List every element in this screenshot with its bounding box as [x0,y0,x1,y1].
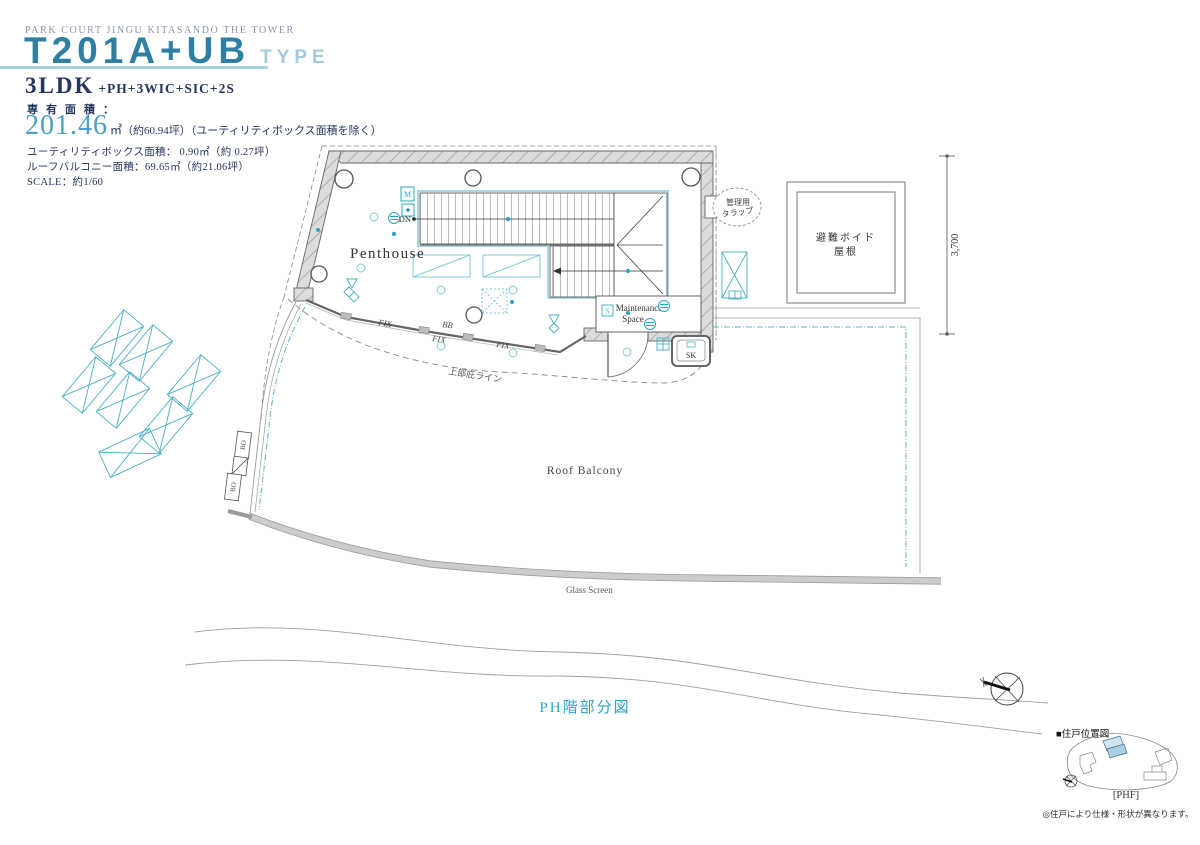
bo-label-2: BO [229,482,238,493]
roof-balcony-label: Roof Balcony [547,465,623,477]
dimension-label: 3,700 [950,234,961,257]
locator-note: ◎住戸により仕様・形状が異なります。 [1043,809,1194,819]
plan-caption: PH階部分図 [539,699,630,716]
maintenance-space: Maintenance Space S [596,296,701,332]
access-ladder-label-1: 管理用 [726,197,750,207]
glass-screen: Glass Screen [228,511,941,595]
fix-label-1: FIX [377,317,394,329]
eave-line-label: 上部庇ライン [448,365,503,384]
glass-screen-label: Glass Screen [566,585,613,595]
fix-label-3: FIX [495,339,511,351]
meter-box-label: M [404,190,411,199]
slop-sink: SK [672,336,710,366]
maintenance-label-2: Space [622,314,644,324]
staircase: DN [399,191,668,298]
room-label: Penthouse [350,246,425,262]
bo-label-1: BO [239,440,248,451]
floor-plan-svg: 上部庇ライン FIX BB FIX FIX [0,0,1200,845]
glass-wall: FIX BB FIX FIX [306,300,586,355]
maintenance-label-1: Maintenance [616,303,662,313]
sink-label: SK [686,351,696,360]
skylights [413,255,540,313]
switch-box-label: S [605,307,609,316]
brochure-page: PARK COURT JINGU KITASANDO THE TOWER T20… [0,0,1200,845]
unit-locator: ■住戸位置図 [PHF] ◎住戸により仕様・形状が異なります。 [1043,728,1194,819]
locator-compass-icon [1063,775,1077,787]
site-edge-waves [185,628,1048,734]
locator-floor-label: [PHF] [1113,790,1139,801]
void-roof-label-2: 屋根 [834,245,858,258]
outlet-icon [389,213,400,224]
bb-label: BB [442,319,454,330]
void-roof-label-1: 避難ボイド [816,231,876,244]
unit-locator-title: ■住戸位置図 [1056,728,1109,740]
evacuation-void-roof: 避難ボイド 屋根 [787,182,905,303]
roof-balcony-boundary: Roof Balcony [250,302,920,573]
dimension-3700: 3,700 [939,155,961,336]
bo-boxes: BO BO [224,431,251,501]
